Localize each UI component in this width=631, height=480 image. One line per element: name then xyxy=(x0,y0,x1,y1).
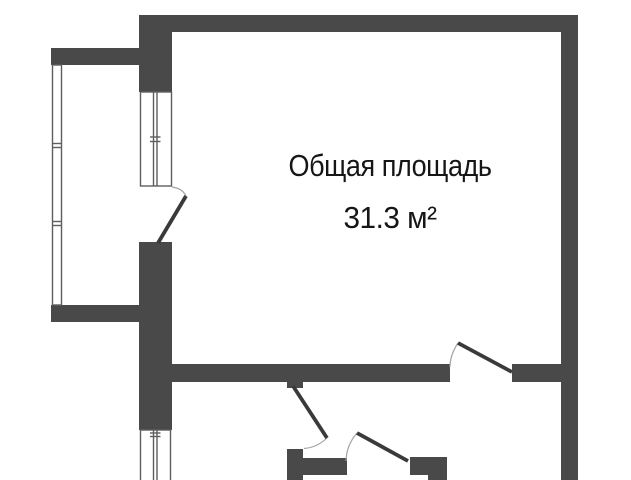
interior-door-leaf-1 xyxy=(293,386,327,438)
walls xyxy=(51,15,578,480)
floor-plan-drawing: Общая площадь 31.3 м² xyxy=(0,0,631,480)
interior-door-arc-1 xyxy=(304,438,327,449)
wall-room-bottom-right xyxy=(512,364,562,382)
room-label: Общая площадь xyxy=(289,148,492,183)
wall-corridor-right-block xyxy=(410,457,447,475)
window-lower-west xyxy=(141,430,171,480)
wall-right xyxy=(561,15,578,480)
floor-plan-page: Общая площадь 31.3 м² xyxy=(0,0,631,480)
window-main-west-frame xyxy=(141,92,172,186)
wall-left-middle xyxy=(139,242,172,430)
interior-door-arc-2 xyxy=(346,433,357,461)
window-lower-west-frame xyxy=(141,430,171,480)
interior-door-leaf-3 xyxy=(458,343,512,372)
door-leaves xyxy=(158,196,512,461)
balcony-door-leaf xyxy=(158,196,186,243)
wall-balcony-top xyxy=(51,48,141,65)
wall-balcony-bottom xyxy=(51,305,141,322)
interior-door-arc-3 xyxy=(450,343,458,367)
window-balcony xyxy=(53,65,62,305)
wall-top xyxy=(140,15,578,32)
window-main-west xyxy=(141,92,172,186)
balcony-door-arc xyxy=(172,187,186,196)
wall-corridor-right-leg xyxy=(428,475,447,480)
wall-corridor-bottom-bar xyxy=(303,458,347,475)
room-label-group: Общая площадь 31.3 м² xyxy=(289,148,492,235)
wall-corridor-left-stub xyxy=(287,449,303,480)
wall-left-upper xyxy=(139,15,172,92)
window-balcony-frame xyxy=(53,65,62,305)
room-area: 31.3 м² xyxy=(344,200,437,235)
interior-door-leaf-2 xyxy=(357,433,408,461)
wall-room-bottom-left xyxy=(139,364,450,382)
